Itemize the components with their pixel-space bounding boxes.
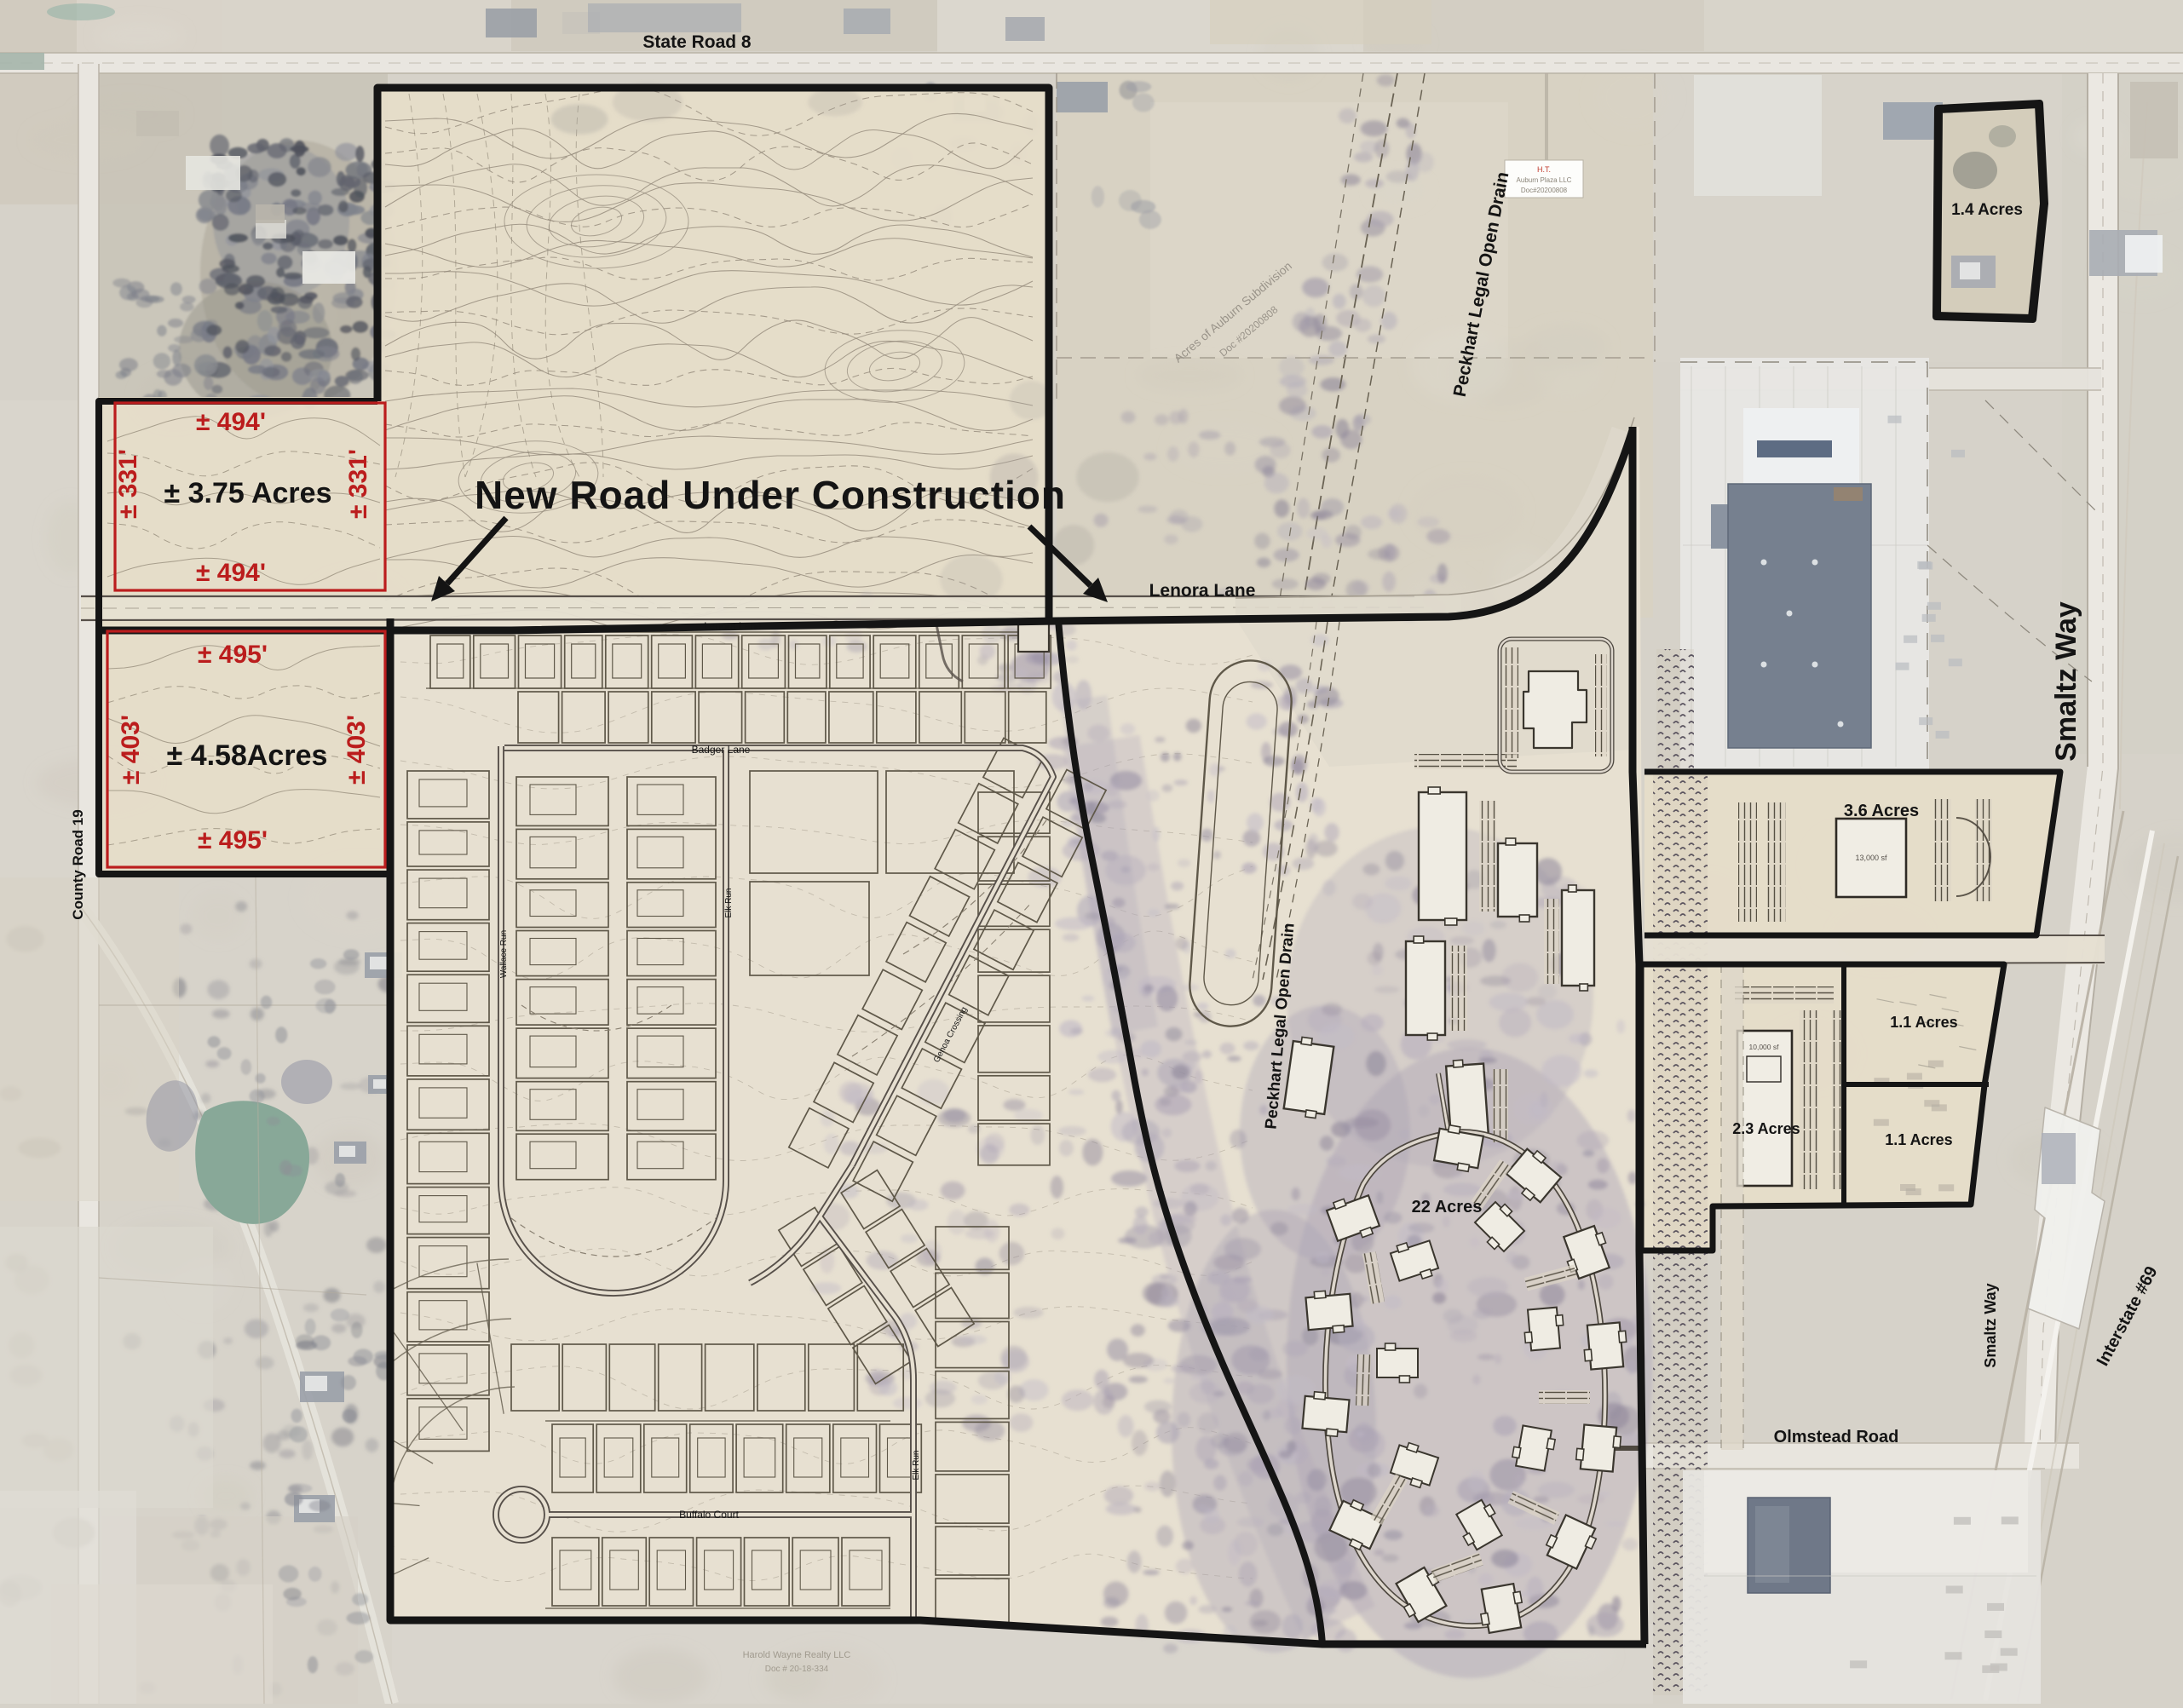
svg-text:± 495': ± 495' — [198, 641, 268, 669]
svg-text:Wallace Run: Wallace Run — [499, 930, 509, 978]
svg-text:± 494': ± 494' — [196, 408, 266, 436]
svg-text:± 494': ± 494' — [196, 559, 266, 587]
svg-text:± 3.75 Acres: ± 3.75 Acres — [164, 477, 332, 509]
svg-text:H.T.: H.T. — [1537, 165, 1551, 174]
svg-text:1.4 Acres: 1.4 Acres — [1951, 201, 2023, 219]
svg-text:Buffalo Court: Buffalo Court — [679, 1509, 739, 1521]
svg-text:Lenora Lane: Lenora Lane — [704, 620, 762, 632]
svg-text:13,000 sf: 13,000 sf — [1855, 854, 1887, 862]
svg-text:± 495': ± 495' — [198, 826, 268, 854]
svg-text:Auburn Plaza LLC: Auburn Plaza LLC — [1517, 176, 1572, 184]
svg-text:Harold Wayne Realty LLC: Harold Wayne Realty LLC — [743, 1650, 851, 1660]
svg-text:± 403': ± 403' — [117, 715, 145, 785]
svg-text:22 Acres: 22 Acres — [1412, 1198, 1483, 1216]
svg-text:2.3 Acres: 2.3 Acres — [1732, 1120, 1800, 1137]
svg-text:Elk Run: Elk Run — [724, 888, 734, 917]
svg-text:Doc # 20-18-334: Doc # 20-18-334 — [765, 1665, 829, 1674]
svg-text:Doc#20200808: Doc#20200808 — [1521, 187, 1568, 194]
svg-text:Badger Lane: Badger Lane — [692, 744, 751, 756]
svg-text:Smaltz Way: Smaltz Way — [1982, 1283, 1999, 1367]
svg-text:Smaltz Way: Smaltz Way — [2050, 601, 2082, 762]
svg-text:± 331': ± 331' — [344, 449, 372, 519]
svg-text:1.1 Acres: 1.1 Acres — [1890, 1014, 1957, 1031]
svg-text:State Road 8: State Road 8 — [642, 32, 752, 52]
svg-text:± 4.58Acres: ± 4.58Acres — [167, 739, 328, 772]
svg-text:County Road 19: County Road 19 — [70, 809, 86, 919]
svg-text:10,000 sf: 10,000 sf — [1749, 1043, 1780, 1051]
svg-text:± 403': ± 403' — [343, 715, 371, 785]
svg-text:3.6 Acres: 3.6 Acres — [1844, 802, 1919, 820]
svg-text:1.1 Acres: 1.1 Acres — [1885, 1131, 1952, 1148]
svg-text:Olmstead Road: Olmstead Road — [1774, 1428, 1899, 1446]
svg-text:Lenora Lane: Lenora Lane — [1149, 581, 1256, 601]
svg-text:Elk Run: Elk Run — [912, 1450, 921, 1480]
svg-text:± 331': ± 331' — [114, 449, 142, 519]
svg-text:New Road Under Construction: New Road Under Construction — [475, 473, 1066, 517]
